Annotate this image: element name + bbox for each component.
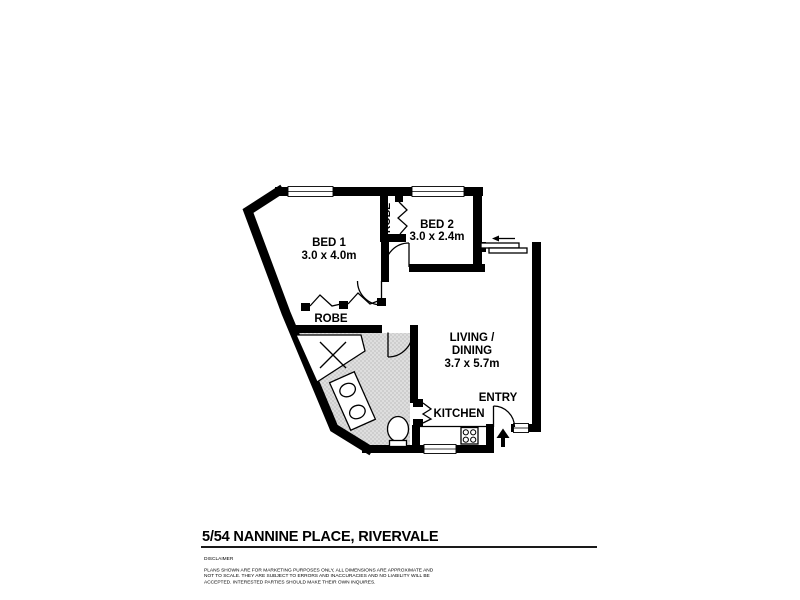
entry-label: ENTRY <box>479 392 518 404</box>
living-label-line1: LIVING / <box>450 332 496 344</box>
disclaimer-line: NOT TO SCALE. THEY ARE SUBJECT TO ERRORS… <box>204 574 433 580</box>
kitchen-label: KITCHEN <box>433 408 484 420</box>
toilet <box>388 417 409 447</box>
disclaimer-line: ACCEPTED. INTERESTED PARTIES SHOULD MAKE… <box>204 580 433 586</box>
bifold-robe-bed1 <box>301 293 386 311</box>
address-underline <box>201 546 597 548</box>
disclaimer-heading: DISCLAIMER <box>204 557 433 563</box>
kitchen-opening <box>413 399 431 427</box>
bed2-label: BED 2 <box>420 219 454 231</box>
bed2-dims: 3.0 x 2.4m <box>410 231 465 243</box>
wall-entry-step <box>486 424 494 453</box>
window-bed2 <box>412 187 464 197</box>
sliding-door <box>481 236 527 254</box>
living-dims: 3.7 x 5.7m <box>445 358 500 370</box>
wall-kitchen-left <box>412 425 420 451</box>
living-label-line2: DINING <box>452 345 492 357</box>
wall-robe1-bottom <box>293 325 382 333</box>
sliding-door-arrow-icon <box>492 236 499 242</box>
wall-bathroom-right <box>410 325 418 403</box>
bed1-label: BED 1 <box>312 237 346 249</box>
stove <box>461 428 478 445</box>
wall-bed2-bottom <box>409 264 485 272</box>
robe-bed1-label: ROBE <box>314 313 348 325</box>
robe-bed2-label: ROBE <box>381 203 393 233</box>
bed1-dims: 3.0 x 4.0m <box>302 250 357 262</box>
wall-bed2-right <box>473 187 482 272</box>
window-kitchen <box>424 445 456 454</box>
address-title: 5/54 NANNINE PLACE, RIVERVALE <box>202 528 438 545</box>
door-entry <box>494 406 515 427</box>
entry-arrow-icon <box>497 429 510 448</box>
wall-right <box>532 242 541 432</box>
floor-plan: BED 1 3.0 x 4.0m BED 2 3.0 x 2.4m ROBE R… <box>0 0 800 600</box>
window-bed1 <box>288 187 333 197</box>
window-entry <box>514 424 529 433</box>
disclaimer: DISCLAIMER PLANS SHOWN ARE FOR MARKETING… <box>204 557 433 586</box>
